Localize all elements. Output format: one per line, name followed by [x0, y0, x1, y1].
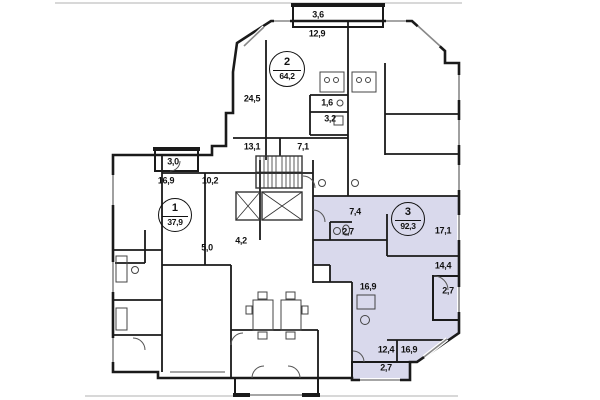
- apartment-3-badge[interactable]: 3 92,3: [391, 202, 425, 236]
- apartment-1-area: 37,9: [167, 217, 182, 227]
- apartment-1-badge[interactable]: 1 37,9: [158, 198, 192, 232]
- apartment-2-area: 64,2: [279, 71, 294, 81]
- apartment-3-number: 3: [395, 207, 421, 221]
- apartment-2-badge[interactable]: 2 64,2: [269, 51, 305, 87]
- apartment-3-area: 92,3: [400, 221, 415, 231]
- floorplan-canvas: 3,6 12,9 24,5 1,6 3,2 13,1 7,1 3,0 16,9 …: [0, 0, 600, 400]
- apartment-2-number: 2: [273, 57, 301, 71]
- apartment-1-number: 1: [162, 203, 188, 217]
